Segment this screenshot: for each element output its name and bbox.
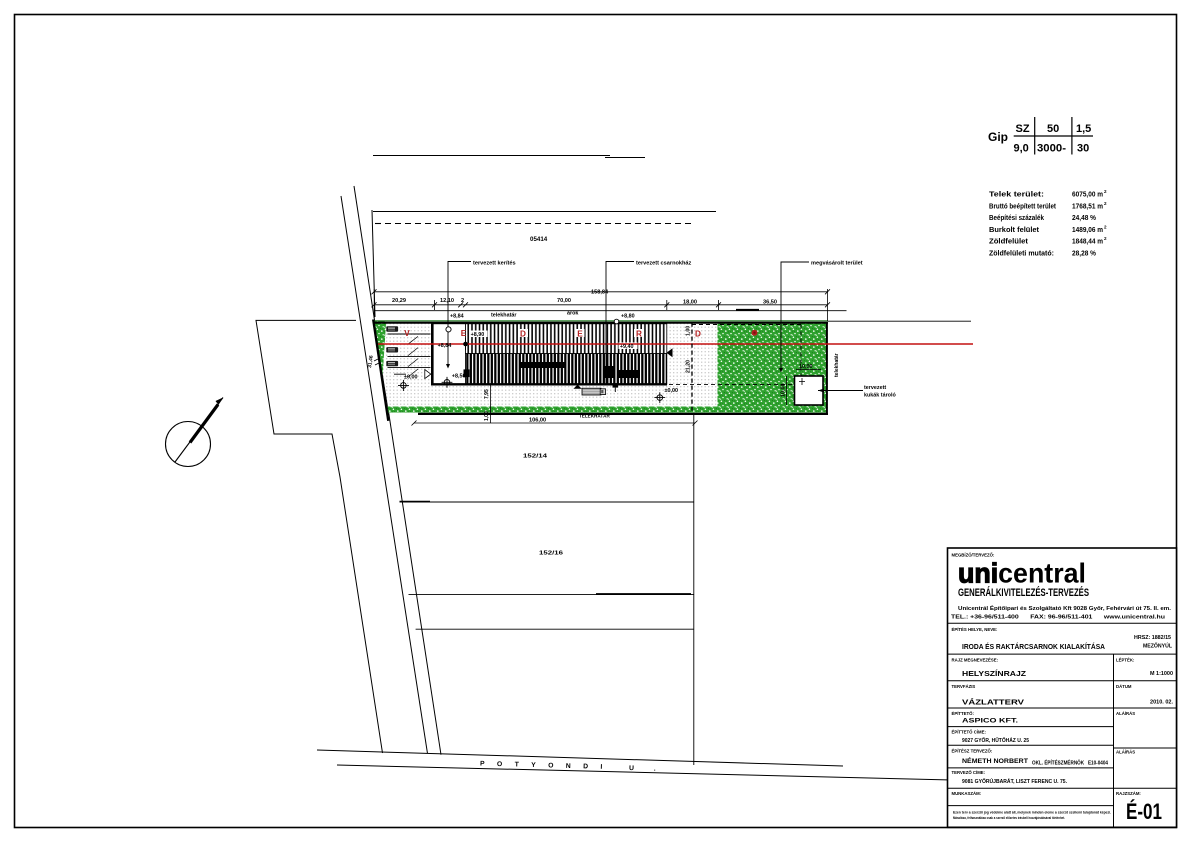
svg-text:ÉPÍTTETŐ:: ÉPÍTTETŐ:	[952, 711, 975, 716]
svg-text:36,50: 36,50	[763, 300, 777, 306]
svg-text:Bruttó beépített terület: Bruttó beépített terület	[989, 201, 1056, 210]
svg-text:+8,56: +8,56	[452, 374, 466, 380]
svg-text:megvásárolt terület: megvásárolt terület	[811, 261, 863, 267]
svg-text:3000-: 3000-	[1037, 143, 1066, 155]
svg-text:2: 2	[1104, 224, 1107, 229]
svg-text:V: V	[404, 329, 410, 338]
svg-text:9,0: 9,0	[1014, 143, 1029, 155]
svg-text:OKL. ÉPÍTÉSZMÉRNÖK E10-0404: OKL. ÉPÍTÉSZMÉRNÖK E10-0404	[1032, 759, 1108, 767]
svg-text:05414: 05414	[530, 236, 548, 243]
svg-text:Zöldfelületi mutató:: Zöldfelületi mutató:	[989, 249, 1054, 258]
svg-text:IRODA ÉS RAKTÁRCSARNOK KIALAKÍ: IRODA ÉS RAKTÁRCSARNOK KIALAKÍTÁSA	[962, 642, 1106, 651]
svg-text:D: D	[695, 330, 701, 339]
svg-text:Unicentrál Építőipari és Szolg: Unicentrál Építőipari és Szolgáltató Kft…	[958, 604, 1172, 612]
svg-text:RAJZ MEGNEVEZÉSE:: RAJZ MEGNEVEZÉSE:	[952, 658, 999, 663]
svg-text:LÉPTÉK:: LÉPTÉK:	[1116, 658, 1135, 663]
svg-text:TERVFÁZIS: TERVFÁZIS	[952, 684, 976, 689]
svg-text:U .: U .	[629, 765, 665, 773]
svg-text:2: 2	[1104, 201, 1107, 206]
svg-text:20,29: 20,29	[392, 298, 406, 304]
svg-text:70,00: 70,00	[557, 298, 571, 304]
svg-text:+9,40: +9,40	[620, 344, 634, 350]
svg-text:árok: árok	[567, 311, 578, 317]
svg-text:18,00: 18,00	[683, 300, 697, 306]
svg-text:7,95: 7,95	[484, 389, 490, 399]
svg-text:50: 50	[1047, 123, 1059, 135]
svg-text:tervezett kerítés: tervezett kerítés	[473, 261, 516, 267]
svg-text:1768,51 m: 1768,51 m	[1072, 201, 1103, 210]
svg-text:2: 2	[1104, 236, 1107, 241]
svg-text:MEGBÍZÓ/TERVEZŐ:: MEGBÍZÓ/TERVEZŐ:	[952, 553, 995, 558]
svg-text:Burkolt felület: Burkolt felület	[989, 225, 1040, 234]
svg-text:RAJZSZÁM:: RAJZSZÁM:	[1116, 791, 1141, 796]
svg-text:6075,00 m: 6075,00 m	[1072, 190, 1103, 199]
svg-text:GENERÁLKIVITELEZÉS-TERVEZÉS: GENERÁLKIVITELEZÉS-TERVEZÉS	[958, 586, 1089, 599]
svg-text:28,28 %: 28,28 %	[1072, 249, 1096, 258]
svg-text:Beépítési százalék: Beépítési százalék	[989, 213, 1045, 222]
svg-text:SZ: SZ	[1016, 123, 1030, 135]
svg-text:24,48 %: 24,48 %	[1072, 213, 1096, 222]
svg-text:telekhatár: telekhatár	[834, 353, 840, 377]
svg-text:E: E	[461, 329, 467, 338]
svg-text:HELYSZÍNRAJZ: HELYSZÍNRAJZ	[962, 669, 1027, 678]
svg-text:TERVEZŐ CÍME:: TERVEZŐ CÍME:	[952, 770, 986, 775]
svg-text:1489,06 m: 1489,06 m	[1072, 225, 1103, 234]
svg-text:M 1:1000: M 1:1000	[1150, 671, 1173, 677]
svg-text:±0,00: ±0,00	[404, 375, 417, 381]
svg-text:ÉPÍTTETŐ CÍME:: ÉPÍTTETŐ CÍME:	[952, 730, 987, 735]
svg-text:unicentral: unicentral	[958, 558, 1086, 589]
svg-text:1,00: 1,00	[484, 411, 490, 421]
svg-text:30: 30	[1077, 143, 1089, 155]
svg-text:+8,84: +8,84	[450, 314, 464, 320]
svg-text:Gip: Gip	[988, 130, 1008, 144]
svg-text:9027 GYŐR, HŰTŐHÁZ U. 25: 9027 GYŐR, HŰTŐHÁZ U. 25	[962, 737, 1029, 744]
svg-text:NÉMETH NORBERT: NÉMETH NORBERT	[962, 756, 1028, 765]
svg-text:2: 2	[461, 298, 464, 304]
svg-text:ALÁÍRÁS: ALÁÍRÁS	[1116, 750, 1135, 755]
svg-text:ÉPÍTÉS HELYE, NEVE:: ÉPÍTÉS HELYE, NEVE:	[952, 627, 998, 632]
svg-text:9081 GYŐRÚJBARÁT, LISZT FERENC: 9081 GYŐRÚJBARÁT, LISZT FERENC U. 75.	[962, 778, 1067, 785]
svg-text:21,20: 21,20	[686, 360, 692, 373]
svg-text:152/16: 152/16	[539, 551, 564, 557]
svg-text:VÁZLATTERV: VÁZLATTERV	[962, 698, 1024, 707]
svg-text:DÁTUM: DÁTUM	[1116, 684, 1132, 689]
svg-text:10,00: 10,00	[781, 384, 787, 398]
svg-text:152/14: 152/14	[523, 454, 548, 460]
svg-text:Ezen terv a szerzői jog védelm: Ezen terv a szerzői jog védelme alatt ál…	[953, 811, 1111, 815]
svg-text:TELEKHATÁR: TELEKHATÁR	[579, 413, 610, 419]
svg-text:ÉPÍTÉSZ TERVEZŐ:: ÉPÍTÉSZ TERVEZŐ:	[952, 749, 993, 754]
svg-text:2010. 02.: 2010. 02.	[1150, 700, 1173, 706]
svg-text:É-01: É-01	[1126, 799, 1162, 824]
svg-text:1848,44 m: 1848,44 m	[1072, 237, 1103, 246]
svg-text:telekhatár: telekhatár	[491, 313, 517, 319]
svg-text:R: R	[636, 330, 642, 339]
svg-text:D: D	[520, 330, 526, 339]
svg-text:+8,90: +8,90	[471, 332, 485, 338]
svg-text:106,00: 106,00	[529, 418, 546, 424]
svg-text:tervezett: tervezett	[864, 385, 886, 391]
svg-text:158,84: 158,84	[591, 289, 609, 295]
svg-text:E: E	[577, 330, 583, 339]
svg-text:1,5: 1,5	[1076, 123, 1091, 135]
svg-text:+8,80: +8,80	[621, 314, 635, 320]
svg-text:Zöldfelület: Zöldfelület	[989, 237, 1029, 246]
svg-text:kukák tároló: kukák tároló	[864, 393, 896, 399]
svg-text:Másolása, felhasználása csak a: Másolása, felhasználása csak a szerző el…	[953, 816, 1065, 820]
svg-text:MEZŐNYÚL: MEZŐNYÚL	[1143, 643, 1173, 650]
svg-text:10,00: 10,00	[799, 364, 813, 370]
svg-text:tervezett csarnokház: tervezett csarnokház	[636, 261, 692, 267]
svg-text:ALÁÍRÁS: ALÁÍRÁS	[1116, 711, 1135, 716]
svg-text:12,10: 12,10	[440, 298, 454, 304]
svg-text:+8,84: +8,84	[438, 343, 452, 349]
svg-text:±0,00: ±0,00	[665, 388, 678, 394]
svg-text:1,00: 1,00	[686, 326, 692, 336]
svg-text:TEL.: +36-96/511-400 FAX:: TEL.: +36-96/511-400 FAX: 96-96/511-401 …	[951, 615, 1165, 621]
svg-text:ASPICO KFT.: ASPICO KFT.	[962, 719, 1018, 725]
svg-text:2: 2	[1104, 189, 1107, 194]
svg-text:Telek terület:: Telek terület:	[989, 190, 1044, 199]
svg-text:MUNKASZÁM:: MUNKASZÁM:	[952, 791, 982, 796]
svg-text:HRSZ: 1882/15: HRSZ: 1882/15	[1134, 635, 1171, 641]
